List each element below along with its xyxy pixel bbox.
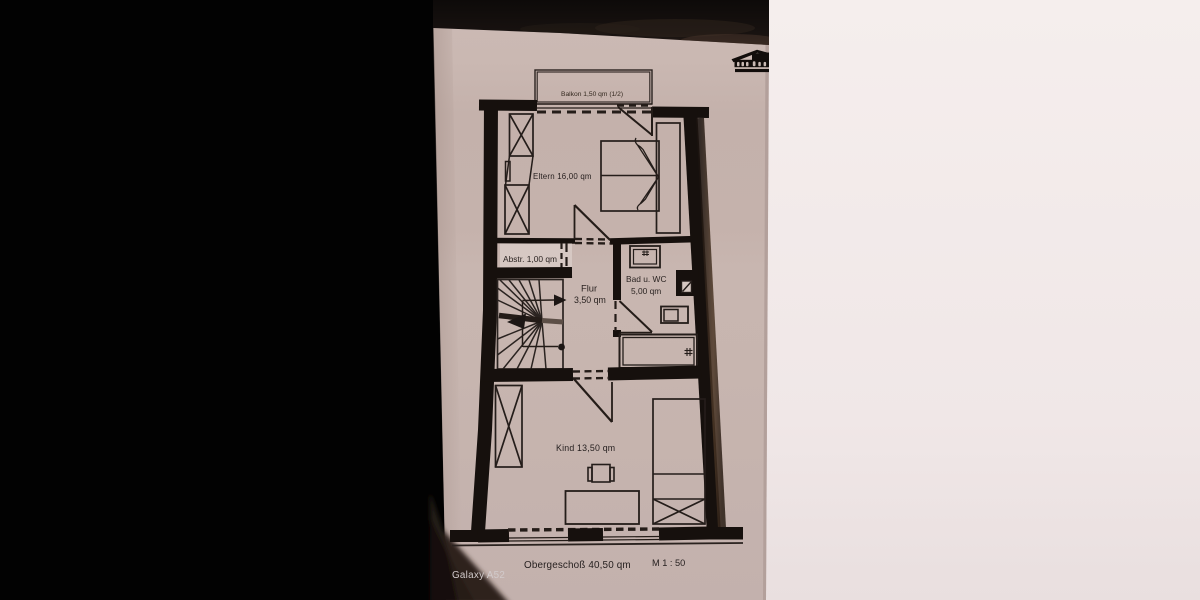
svg-text:M 1 : 50: M 1 : 50 [652, 558, 685, 568]
svg-text:5,00 qm: 5,00 qm [631, 286, 661, 296]
svg-text:Abstr. 1,00 qm: Abstr. 1,00 qm [503, 254, 557, 264]
svg-text:3,50 qm: 3,50 qm [574, 295, 606, 305]
svg-text:Bad u. WC: Bad u. WC [626, 274, 667, 284]
svg-text:Obergeschoß 40,50 qm: Obergeschoß 40,50 qm [524, 560, 631, 571]
svg-text:Balkon 1,50 qm (1/2): Balkon 1,50 qm (1/2) [561, 91, 623, 98]
svg-text:Galaxy A52: Galaxy A52 [452, 570, 505, 581]
svg-text:Kind 13,50 qm: Kind 13,50 qm [556, 443, 615, 453]
svg-text:Eltern 16,00 qm: Eltern 16,00 qm [533, 172, 592, 181]
svg-text:Flur: Flur [581, 283, 597, 294]
